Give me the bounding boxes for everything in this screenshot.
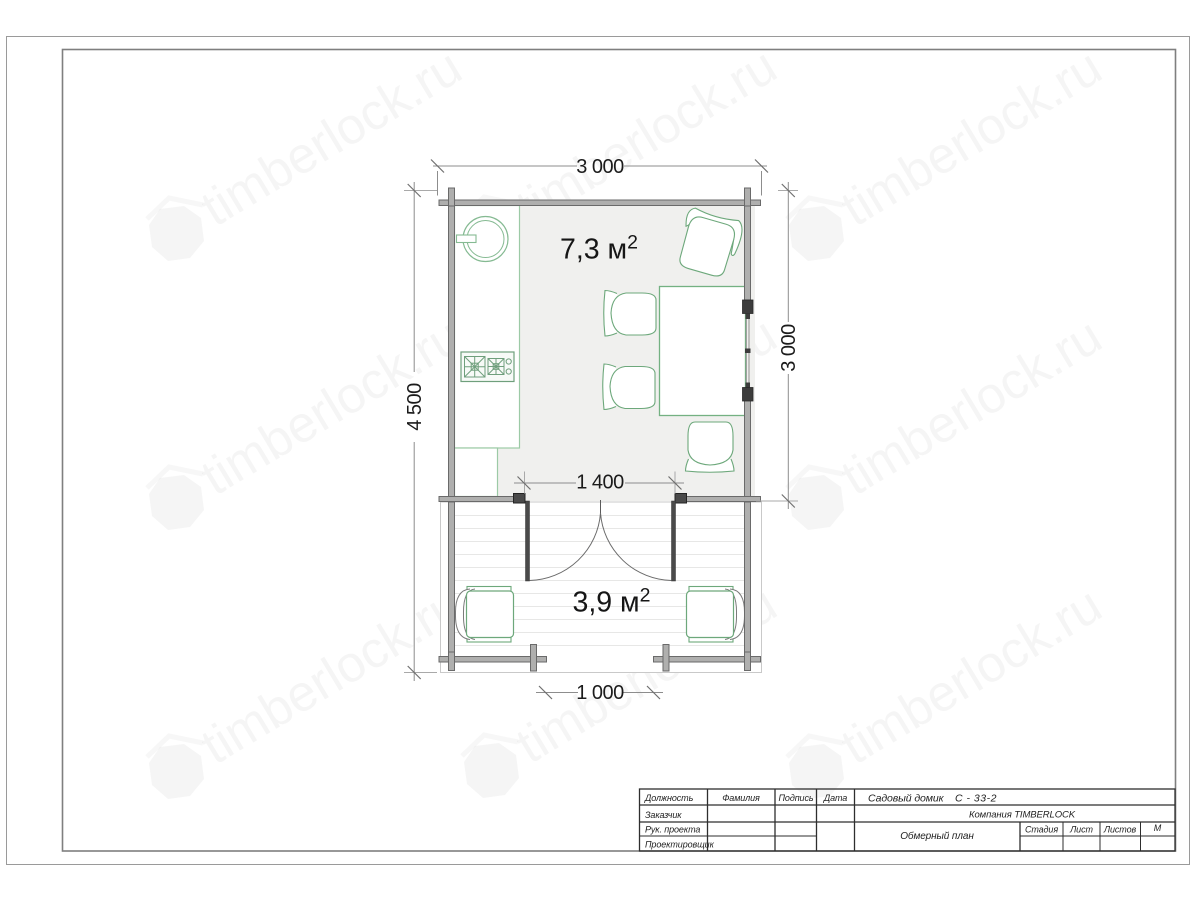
svg-text:Лист: Лист	[1069, 825, 1093, 835]
svg-text:Заказчик: Заказчик	[645, 810, 682, 820]
svg-text:1 000: 1 000	[576, 682, 624, 704]
svg-text:3,9 м2: 3,9 м2	[573, 585, 651, 619]
svg-text:3 000: 3 000	[576, 156, 624, 178]
svg-text:Рук. проекта: Рук. проекта	[645, 825, 700, 835]
svg-text:7,3 м2: 7,3 м2	[560, 232, 638, 266]
svg-text:timberlock.ru: timberlock.ru	[831, 38, 1111, 237]
svg-text:Дата: Дата	[823, 793, 847, 803]
svg-text:4 500: 4 500	[404, 383, 426, 431]
svg-text:1 400: 1 400	[576, 472, 624, 494]
svg-text:timberlock.ru: timberlock.ru	[191, 307, 471, 506]
svg-text:С - 33-2: С - 33-2	[955, 793, 997, 805]
svg-text:timberlock.ru: timberlock.ru	[831, 307, 1111, 506]
svg-text:Фамилия: Фамилия	[722, 793, 760, 803]
svg-text:Компания TIMBERLOCK: Компания TIMBERLOCK	[969, 810, 1076, 821]
svg-text:Стадия: Стадия	[1025, 825, 1058, 835]
svg-text:Садовый домик: Садовый домик	[868, 793, 945, 805]
svg-text:timberlock.ru: timberlock.ru	[831, 576, 1111, 775]
svg-text:3 000: 3 000	[778, 324, 800, 372]
svg-text:Должность: Должность	[644, 793, 694, 803]
svg-text:Листов: Листов	[1103, 825, 1137, 835]
svg-text:timberlock.ru: timberlock.ru	[191, 576, 471, 775]
svg-text:Обмерный план: Обмерный план	[900, 830, 974, 842]
svg-text:Подпись: Подпись	[779, 793, 814, 803]
svg-text:М: М	[1154, 823, 1162, 833]
svg-text:Проектировщик: Проектировщик	[645, 840, 715, 850]
svg-text:timberlock.ru: timberlock.ru	[191, 38, 471, 237]
